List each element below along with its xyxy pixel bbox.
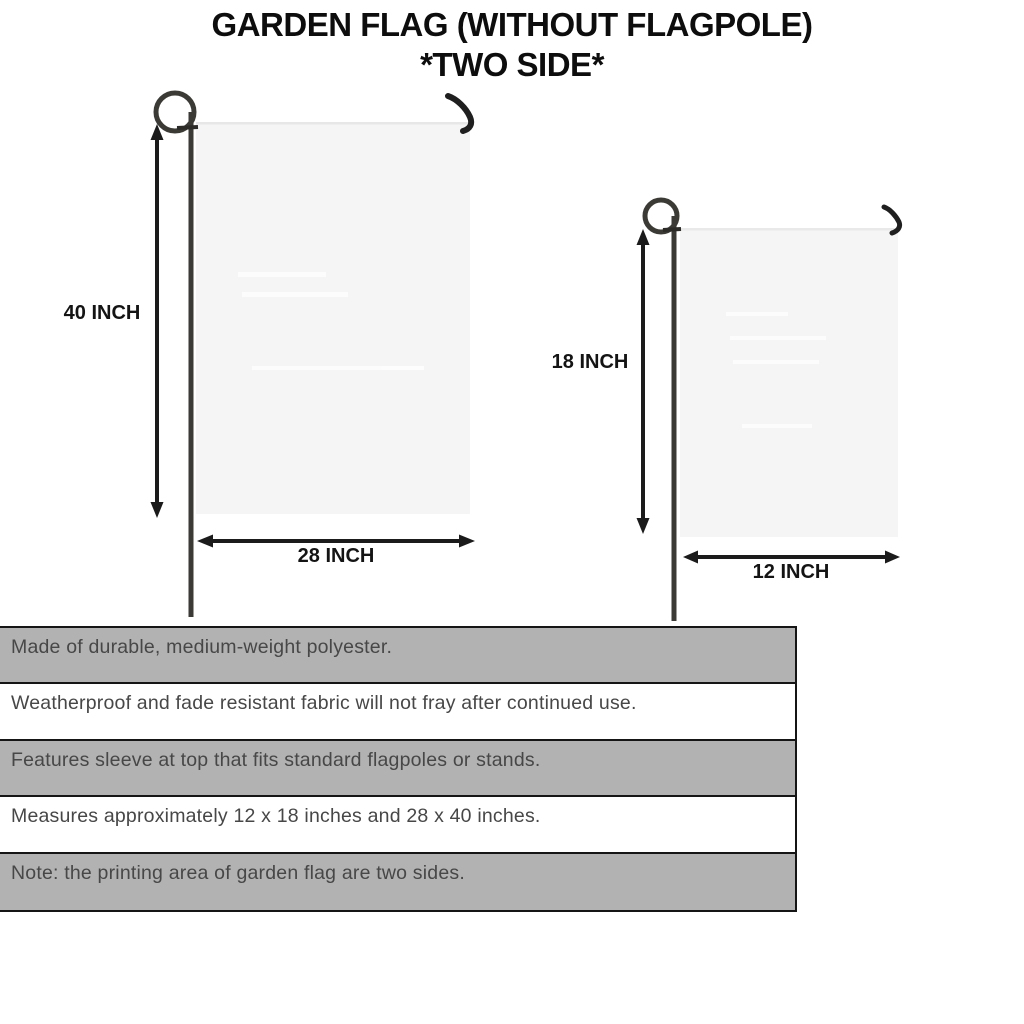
feature-row-measurements: Measures approximately 12 x 18 inches an… — [0, 797, 795, 853]
small-flag-assembly — [637, 200, 901, 621]
garden-flag-size-chart: GARDEN FLAG (WITHOUT FLAGPOLE) *TWO SIDE… — [0, 0, 1024, 1024]
small-flag-height-label: 18 INCH — [544, 351, 636, 374]
feature-row-material: Made of durable, medium-weight polyester… — [0, 628, 795, 684]
large-flag-height-arrow — [151, 124, 164, 518]
small-flag-width-label: 12 INCH — [741, 561, 841, 584]
features-table: Made of durable, medium-weight polyester… — [0, 626, 797, 912]
small-flag-cloth — [680, 228, 898, 537]
large-flag-cloth — [196, 122, 470, 514]
feature-row-note: Note: the printing area of garden flag a… — [0, 854, 795, 910]
feature-row-weatherproof: Weatherproof and fade resistant fabric w… — [0, 684, 795, 740]
large-flag-pole-loop — [156, 93, 194, 131]
large-flag-pole-clip — [177, 127, 198, 128]
small-flag-height-arrow — [637, 229, 650, 534]
feature-row-sleeve: Features sleeve at top that fits standar… — [0, 741, 795, 797]
large-flag-height-label: 40 INCH — [52, 302, 152, 325]
small-flag-sleeve-edge — [680, 228, 898, 231]
large-flag-assembly — [151, 93, 476, 617]
large-flag-width-label: 28 INCH — [286, 545, 386, 568]
large-flag-sleeve-edge — [196, 122, 470, 125]
small-flag-pole-clip — [663, 229, 681, 230]
